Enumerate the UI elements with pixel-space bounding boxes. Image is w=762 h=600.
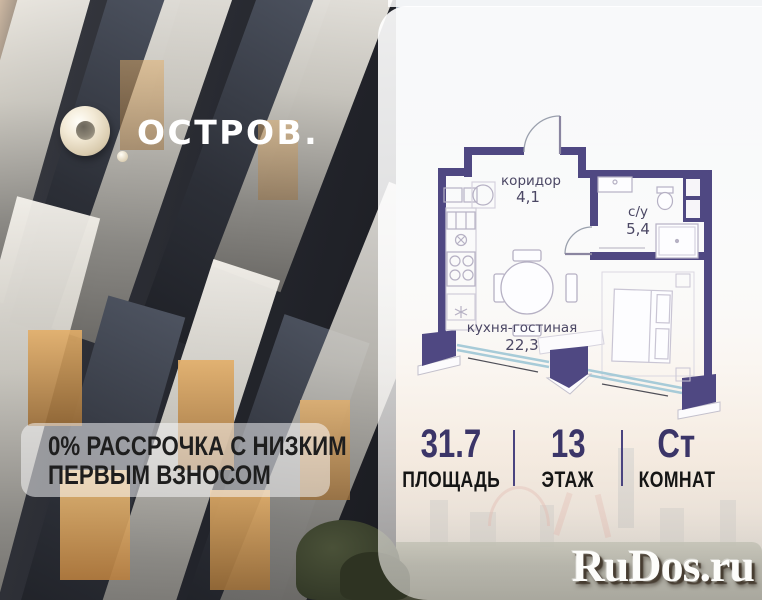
promo-line-2: ПЕРВЫМ ВЗНОСОМ <box>48 461 271 490</box>
stat-floor: 13 ЭТАЖ <box>515 422 622 500</box>
donut-o-icon <box>60 106 110 156</box>
brand-name: ОСТРОВ. <box>137 113 319 152</box>
real-estate-ad: коридор 4,1 с/у 5,4 кухня-гостиная 22,3 … <box>0 0 762 600</box>
stat-rooms-value: Ст <box>658 424 696 464</box>
bed <box>612 289 672 363</box>
room-area-corridor: 4,1 <box>516 188 540 206</box>
bathroom-door-arc <box>565 227 592 254</box>
panel-top-edge <box>388 0 762 7</box>
apartment-stats: 31.7 ПЛОЩАДЬ 13 ЭТАЖ Ст КОМНАТ <box>390 422 730 500</box>
shaft-cutout <box>686 179 700 196</box>
promo-banner: 0% РАССРОЧКА С НИЗКИМ ПЕРВЫМ ВЗНОСОМ <box>21 423 330 497</box>
building-photo <box>0 0 396 600</box>
stat-area-label: ПЛОЩАДЬ <box>402 467 500 493</box>
kitchen-fixtures <box>444 182 495 330</box>
shaft-cutout <box>686 200 700 218</box>
watermark: RuDos.ru <box>572 539 754 592</box>
room-label-corridor: коридор <box>501 173 561 189</box>
stat-area: 31.7 ПЛОЩАДЬ <box>390 422 513 500</box>
room-label-kitchen-living: кухня-гостиная <box>467 320 578 336</box>
brand-logo: ОСТРОВ. <box>60 106 319 156</box>
logo-dot <box>117 151 128 162</box>
stat-area-value: 31.7 <box>421 424 482 464</box>
balcony-rail-line <box>602 384 668 396</box>
window-warm <box>210 490 270 590</box>
floorplan-diagram: коридор 4,1 с/у 5,4 кухня-гостиная 22,3 <box>410 78 760 423</box>
room-area-kitchen-living: 22,3 <box>505 336 538 354</box>
window-warm <box>28 330 82 426</box>
room-label-bathroom: с/у <box>628 204 648 220</box>
stat-floor-label: ЭТАЖ <box>542 467 594 493</box>
stat-rooms: Ст КОМНАТ <box>623 422 730 500</box>
stat-floor-value: 13 <box>551 424 586 464</box>
room-area-bathroom: 5,4 <box>626 220 650 238</box>
promo-line-1: 0% РАССРОЧКА С НИЗКИМ <box>48 432 347 461</box>
nightstand <box>676 274 690 287</box>
balcony-rail-line <box>468 358 538 372</box>
stat-rooms-label: КОМНАТ <box>638 467 715 493</box>
entrance-door-arc <box>524 116 560 152</box>
